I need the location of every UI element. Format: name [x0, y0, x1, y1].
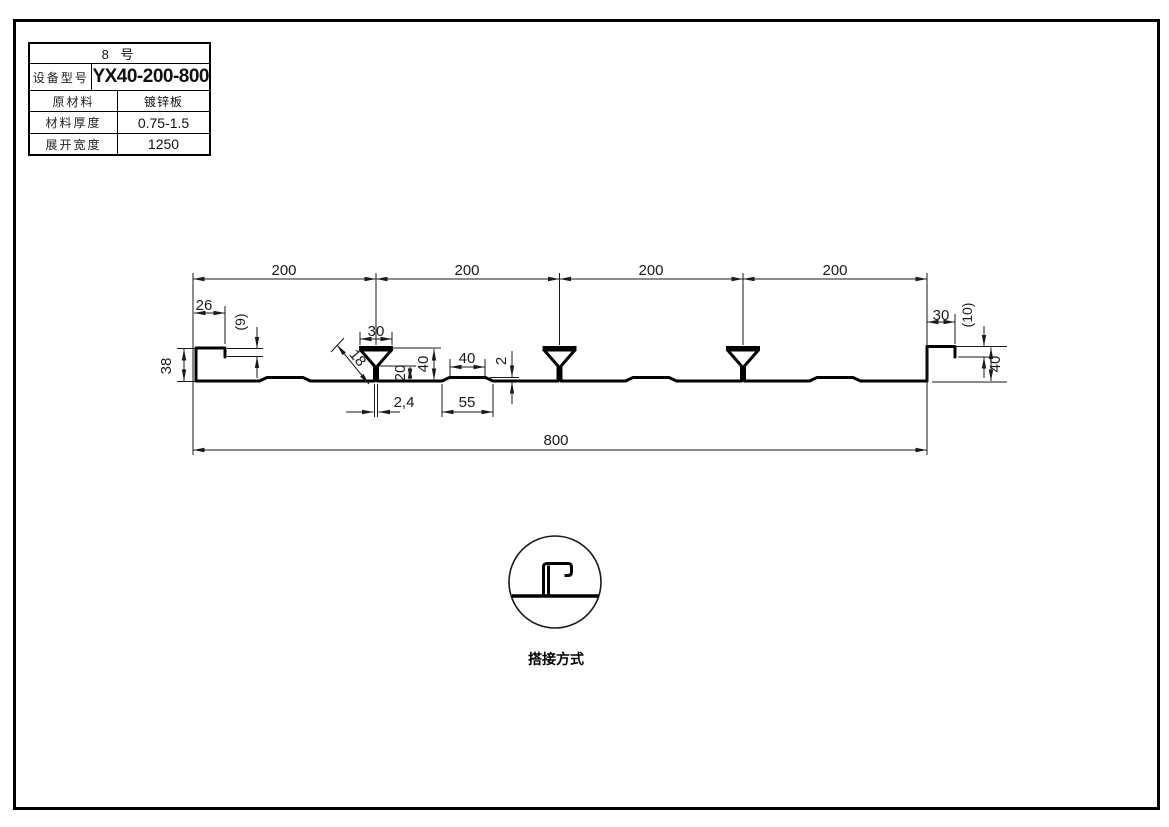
- dimension-label: 200: [454, 262, 479, 279]
- dimension-label: 40: [987, 356, 1004, 373]
- dimension-label: 40: [459, 350, 476, 367]
- dimension-labels: 200 200 200 200 800 26 (9) 38 30 18 20 4…: [158, 262, 1004, 449]
- dimension-lines: [177, 273, 1007, 455]
- dimension-label: 30: [368, 323, 385, 340]
- lap-detail-caption: 搭接方式: [496, 649, 616, 669]
- dimension-label: 26: [196, 297, 213, 314]
- dimension-label: 200: [271, 262, 296, 279]
- dimension-label: 20: [392, 365, 409, 382]
- dimension-label: 55: [459, 394, 476, 411]
- dimension-label: 200: [822, 262, 847, 279]
- dimension-label: 38: [158, 358, 175, 375]
- dimension-label: (9): [232, 313, 248, 330]
- profile-cross-section-drawing: 200 200 200 200 800 26 (9) 38 30 18 20 4…: [0, 0, 1169, 827]
- dimension-label: 2: [493, 357, 510, 365]
- dimension-label: 30: [933, 307, 950, 324]
- dimension-label: (10): [959, 303, 975, 328]
- sheet-profile: [196, 347, 955, 382]
- drawing-sheet: 8 号 设备型号 YX40-200-800 原材料 镀锌板 材料厚度 0.75-…: [0, 0, 1169, 827]
- detail-circle: [509, 536, 601, 628]
- dimension-label: 800: [543, 432, 568, 449]
- dimension-label: 200: [638, 262, 663, 279]
- dimension-label: 2,4: [394, 394, 415, 411]
- dimension-label: 40: [415, 356, 432, 373]
- lap-joint-detail: [509, 536, 601, 628]
